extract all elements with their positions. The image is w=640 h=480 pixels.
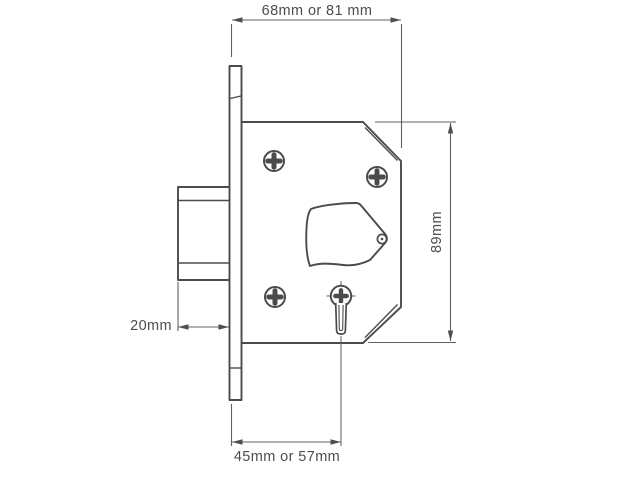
arrow-up-icon: [448, 123, 453, 134]
arrow-right-icon: [331, 439, 342, 444]
arrow-left-icon: [232, 17, 243, 22]
screw-top-left-icon: [264, 151, 284, 171]
arrow-right-icon: [219, 324, 230, 329]
arrow-down-icon: [448, 331, 453, 342]
bottom-dimension: 45mm or 57mm: [232, 336, 342, 465]
right-dimension-label: 89mm: [429, 211, 445, 253]
faceplate: [230, 66, 242, 400]
deadbolt: [178, 187, 231, 280]
left-dimension-label: 20mm: [130, 318, 172, 334]
screw-top-right-icon: [367, 167, 387, 187]
screw-bottom-left-icon: [265, 287, 285, 307]
top-dimension-label: 68mm or 81 mm: [262, 3, 373, 19]
arrow-right-icon: [391, 17, 402, 22]
arrow-left-icon: [178, 324, 189, 329]
keyhole-slot: [336, 303, 347, 334]
mortice-lock-dimension-diagram: 68mm or 81 mm 89mm 20mm 45mm or 57mm: [0, 0, 640, 480]
left-dimension: 20mm: [130, 282, 229, 334]
bottom-dimension-label: 45mm or 57mm: [234, 449, 340, 465]
arrow-left-icon: [232, 439, 243, 444]
